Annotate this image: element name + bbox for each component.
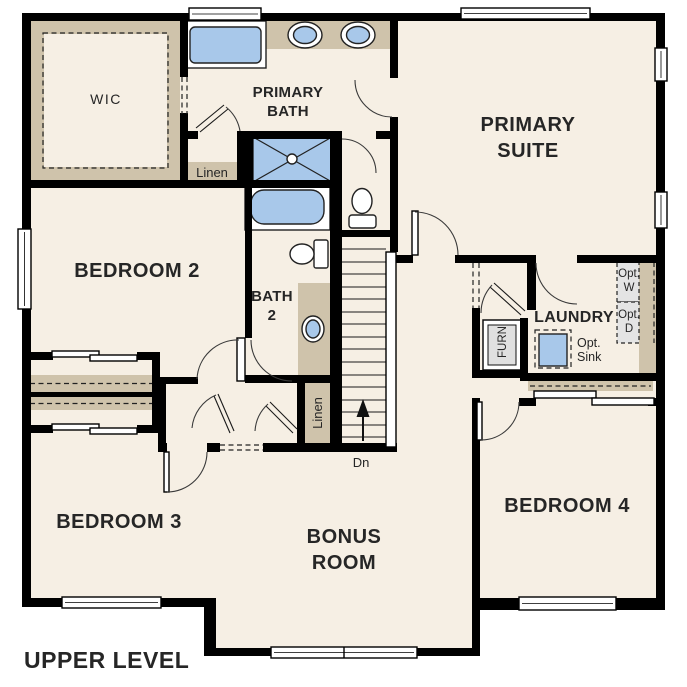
primary-sink2-icon (341, 22, 375, 48)
label-opt-washer: W (624, 282, 635, 294)
floor-plan: WIC PRIMARY BATH PRIMARY SUITE BEDROOM 2… (0, 0, 687, 687)
room-label-bath2: 2 (268, 307, 277, 324)
bath2-bathtub-icon (245, 184, 330, 230)
door-leaf (412, 211, 418, 255)
optional-sink-icon (535, 330, 571, 368)
room-label-primary-bath: PRIMARY (253, 84, 324, 101)
floor-plan-page: WIC PRIMARY BATH PRIMARY SUITE BEDROOM 2… (0, 0, 687, 687)
room-label-bath2: BATH (251, 288, 293, 305)
label-opt-sink: Opt. (577, 336, 601, 350)
primary-bathtub-icon (185, 21, 266, 68)
room-label-primary-suite: PRIMARY (481, 114, 576, 136)
room-label-laundry: LAUNDRY (534, 309, 614, 326)
label-linen-upper: Linen (196, 165, 228, 180)
label-stairs-down: Dn (353, 455, 370, 470)
label-opt-sink: Sink (577, 350, 602, 364)
sliding-closet-door (90, 355, 137, 361)
label-opt-dryer: D (625, 323, 633, 335)
door-jamb (237, 338, 245, 381)
room-label-bedroom4: BEDROOM 4 (504, 495, 630, 517)
label-opt-dryer: Opt. (618, 309, 640, 321)
sliding-closet-door (90, 428, 137, 434)
shower-icon (253, 137, 332, 182)
room-label-primary-bath: BATH (267, 103, 309, 120)
sliding-closet-door (534, 391, 596, 398)
primary-sink-icon (288, 22, 322, 48)
label-opt-washer: Opt. (618, 268, 640, 280)
room-label-bonus-room: ROOM (312, 552, 376, 574)
label-linen-hall: Linen (310, 397, 325, 429)
sliding-closet-door (592, 398, 654, 405)
room-label-primary-suite: SUITE (497, 140, 558, 162)
label-furnace: FURN (497, 326, 509, 358)
plan-title: UPPER LEVEL (24, 647, 189, 673)
room-label-bedroom2: BEDROOM 2 (74, 260, 200, 282)
room-label-wic: WIC (90, 91, 122, 107)
door-leaf (477, 402, 482, 440)
room-label-bonus-room: BONUS (307, 526, 382, 548)
room-label-bedroom3: BEDROOM 3 (56, 511, 182, 533)
door-leaf (164, 452, 169, 492)
bath2-sink-icon (302, 316, 324, 342)
stair-railing (386, 252, 396, 447)
